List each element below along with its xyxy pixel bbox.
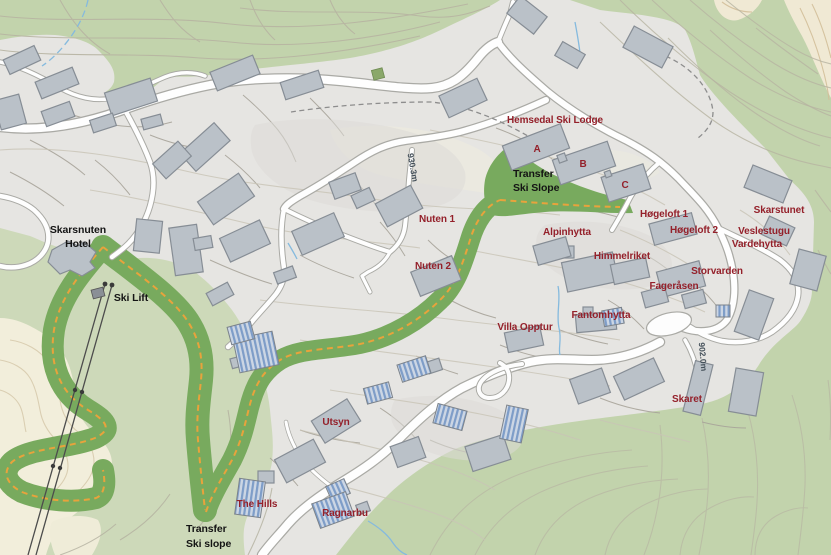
svg-text:Skarstunet: Skarstunet: [754, 205, 805, 216]
svg-text:Transfer: Transfer: [186, 523, 227, 535]
svg-text:Ski slope: Ski slope: [186, 538, 231, 550]
svg-text:Transfer: Transfer: [513, 168, 554, 180]
svg-text:C: C: [621, 180, 628, 191]
svg-text:Høgeloft 2: Høgeloft 2: [670, 225, 718, 236]
svg-text:Skaret: Skaret: [672, 394, 703, 405]
svg-text:Himmelriket: Himmelriket: [594, 251, 651, 262]
svg-text:Vardehytta: Vardehytta: [732, 239, 783, 250]
svg-text:The Hills: The Hills: [237, 499, 278, 510]
svg-text:Fageråsen: Fageråsen: [649, 280, 698, 292]
svg-text:Ski Slope: Ski Slope: [513, 182, 560, 194]
svg-text:Utsyn: Utsyn: [322, 417, 349, 428]
svg-text:A: A: [533, 144, 540, 155]
svg-text:Storvarden: Storvarden: [691, 266, 743, 277]
svg-text:Veslestugu: Veslestugu: [738, 226, 790, 237]
svg-text:Fantomhytta: Fantomhytta: [572, 310, 631, 321]
svg-text:Høgeloft 1: Høgeloft 1: [640, 209, 688, 220]
svg-text:B: B: [579, 159, 586, 170]
svg-text:Ski Lift: Ski Lift: [114, 292, 149, 304]
svg-text:Villa Opptur: Villa Opptur: [497, 322, 552, 333]
svg-text:Ragnarbu: Ragnarbu: [322, 508, 368, 519]
svg-text:Alpinhytta: Alpinhytta: [543, 227, 591, 238]
svg-text:Hemsedal Ski Lodge: Hemsedal Ski Lodge: [507, 115, 604, 126]
svg-text:Nuten 1: Nuten 1: [419, 214, 456, 225]
svg-text:Nuten 2: Nuten 2: [415, 261, 452, 272]
svg-text:Hotel: Hotel: [65, 238, 91, 250]
svg-text:Skarsnuten: Skarsnuten: [50, 224, 106, 236]
